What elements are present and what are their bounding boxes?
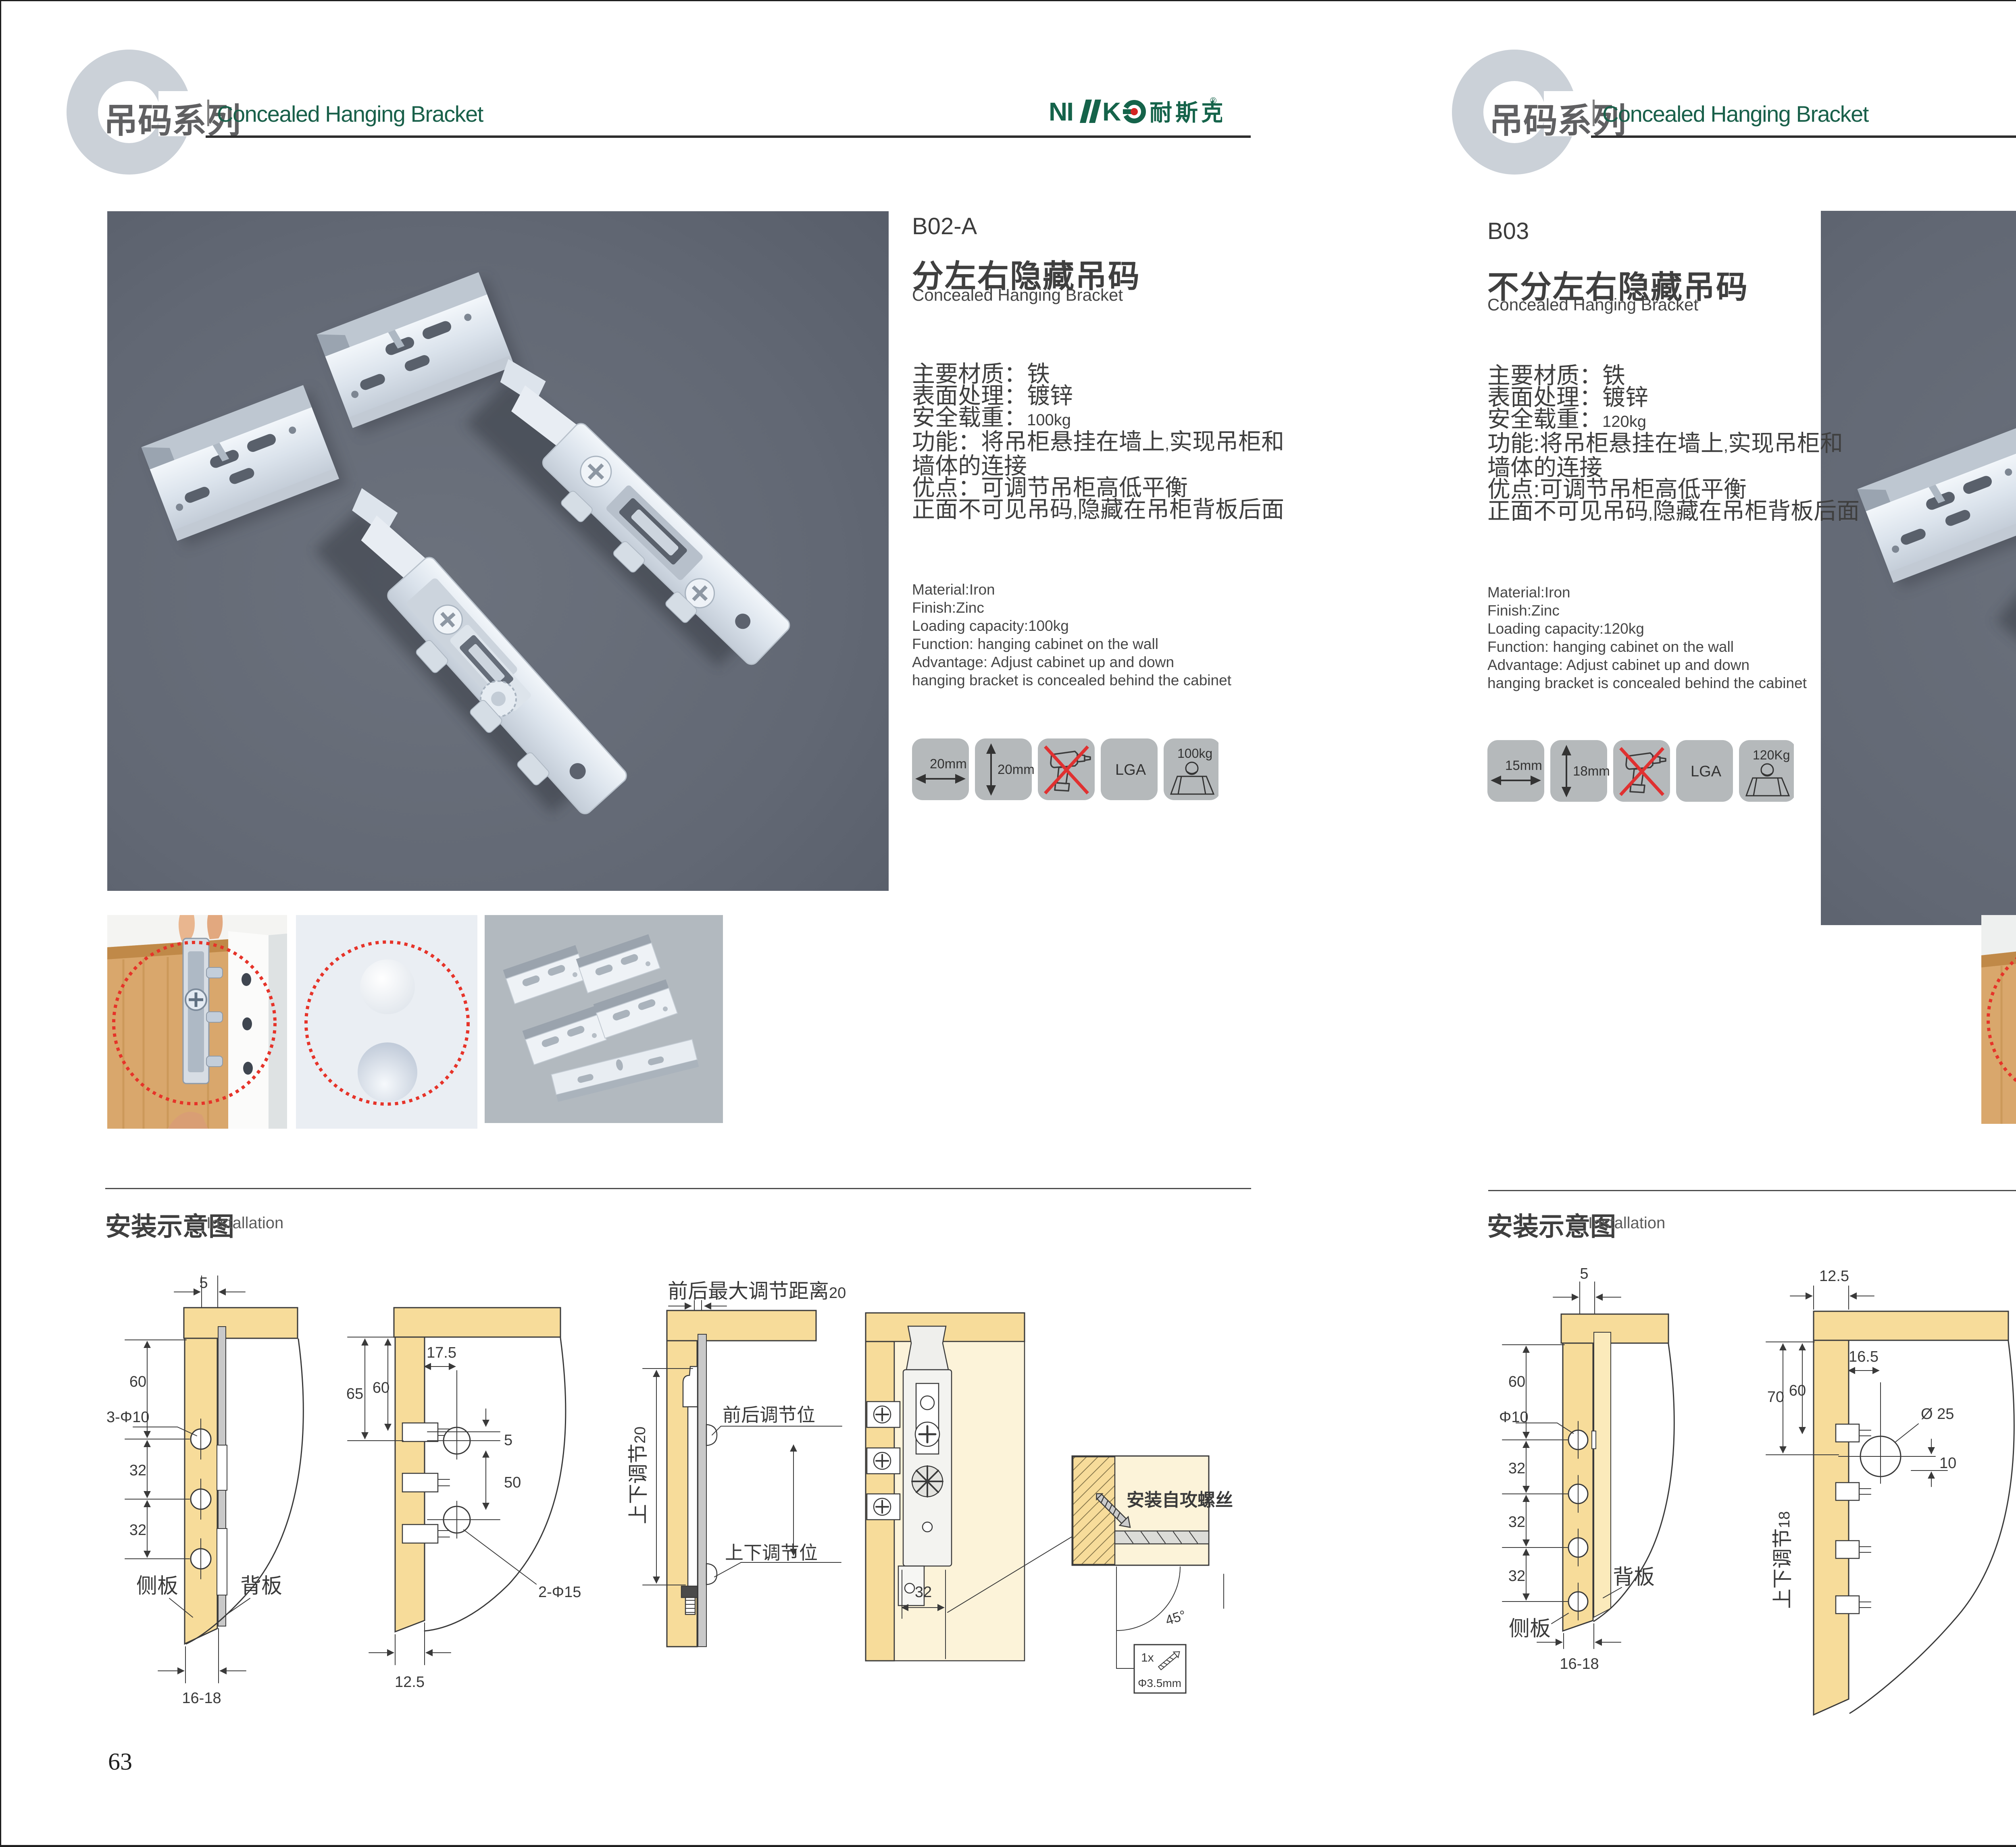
svg-text:上下调节20: 上下调节20 bbox=[627, 1427, 650, 1524]
svg-text:18mm: 18mm bbox=[1573, 763, 1610, 778]
svg-text:2-Φ15: 2-Φ15 bbox=[538, 1584, 581, 1601]
svg-text:前后调节位: 前后调节位 bbox=[723, 1404, 815, 1425]
svg-text:侧板: 侧板 bbox=[1509, 1617, 1551, 1641]
svg-text:上下调节位: 上下调节位 bbox=[725, 1542, 818, 1563]
svg-text:15mm: 15mm bbox=[1505, 758, 1542, 773]
svg-text:®: ® bbox=[1210, 97, 1216, 106]
svg-text:60: 60 bbox=[1508, 1373, 1525, 1390]
svg-text:安装自攻螺丝: 安装自攻螺丝 bbox=[1127, 1490, 1233, 1510]
svg-text:前后最大调节距离20: 前后最大调节距离20 bbox=[668, 1280, 846, 1302]
svg-text:12.5: 12.5 bbox=[395, 1674, 425, 1691]
svg-text:5: 5 bbox=[199, 1275, 208, 1292]
svg-text:上下调节18: 上下调节18 bbox=[1771, 1511, 1794, 1609]
svg-text:20mm: 20mm bbox=[930, 756, 967, 771]
svg-text:17.5: 17.5 bbox=[427, 1344, 456, 1361]
svg-text:32: 32 bbox=[915, 1584, 932, 1601]
svg-text:20mm: 20mm bbox=[998, 762, 1035, 777]
svg-text:60: 60 bbox=[129, 1373, 146, 1390]
svg-text:16.5: 16.5 bbox=[1849, 1348, 1879, 1365]
svg-text:32: 32 bbox=[1508, 1514, 1525, 1531]
svg-text:3-Φ10: 3-Φ10 bbox=[106, 1409, 149, 1426]
svg-text:NI: NI bbox=[1049, 97, 1073, 126]
svg-text:32: 32 bbox=[1508, 1568, 1525, 1585]
svg-text:10: 10 bbox=[1939, 1455, 1956, 1472]
svg-text:32: 32 bbox=[129, 1462, 146, 1479]
svg-text:32: 32 bbox=[1508, 1460, 1525, 1477]
svg-text:Ø 25: Ø 25 bbox=[1921, 1406, 1954, 1423]
svg-text:16-18: 16-18 bbox=[1560, 1656, 1599, 1672]
svg-text:32: 32 bbox=[129, 1522, 146, 1539]
svg-text:65: 65 bbox=[346, 1385, 363, 1402]
svg-text:1x: 1x bbox=[1141, 1651, 1154, 1664]
svg-text:45°: 45° bbox=[1164, 1608, 1188, 1629]
svg-text:100kg: 100kg bbox=[1177, 746, 1212, 761]
svg-text:Φ3.5mm: Φ3.5mm bbox=[1138, 1677, 1181, 1689]
svg-text:5: 5 bbox=[504, 1432, 512, 1449]
svg-text:背板: 背板 bbox=[1613, 1566, 1655, 1589]
svg-text:70: 70 bbox=[1767, 1389, 1784, 1406]
svg-text:K: K bbox=[1102, 97, 1121, 126]
svg-text:60: 60 bbox=[1789, 1382, 1806, 1399]
svg-text:5: 5 bbox=[1580, 1265, 1588, 1282]
svg-text:16-18: 16-18 bbox=[182, 1690, 221, 1707]
svg-text:背板: 背板 bbox=[240, 1575, 282, 1598]
svg-text:120Kg: 120Kg bbox=[1753, 748, 1790, 762]
svg-text:60: 60 bbox=[373, 1379, 389, 1396]
svg-text:侧板: 侧板 bbox=[136, 1575, 178, 1598]
svg-text:50: 50 bbox=[504, 1474, 521, 1491]
svg-text:LGA: LGA bbox=[1115, 761, 1146, 778]
svg-text:LGA: LGA bbox=[1691, 763, 1722, 780]
svg-text:Φ10: Φ10 bbox=[1499, 1409, 1529, 1426]
svg-text:12.5: 12.5 bbox=[1819, 1268, 1849, 1285]
